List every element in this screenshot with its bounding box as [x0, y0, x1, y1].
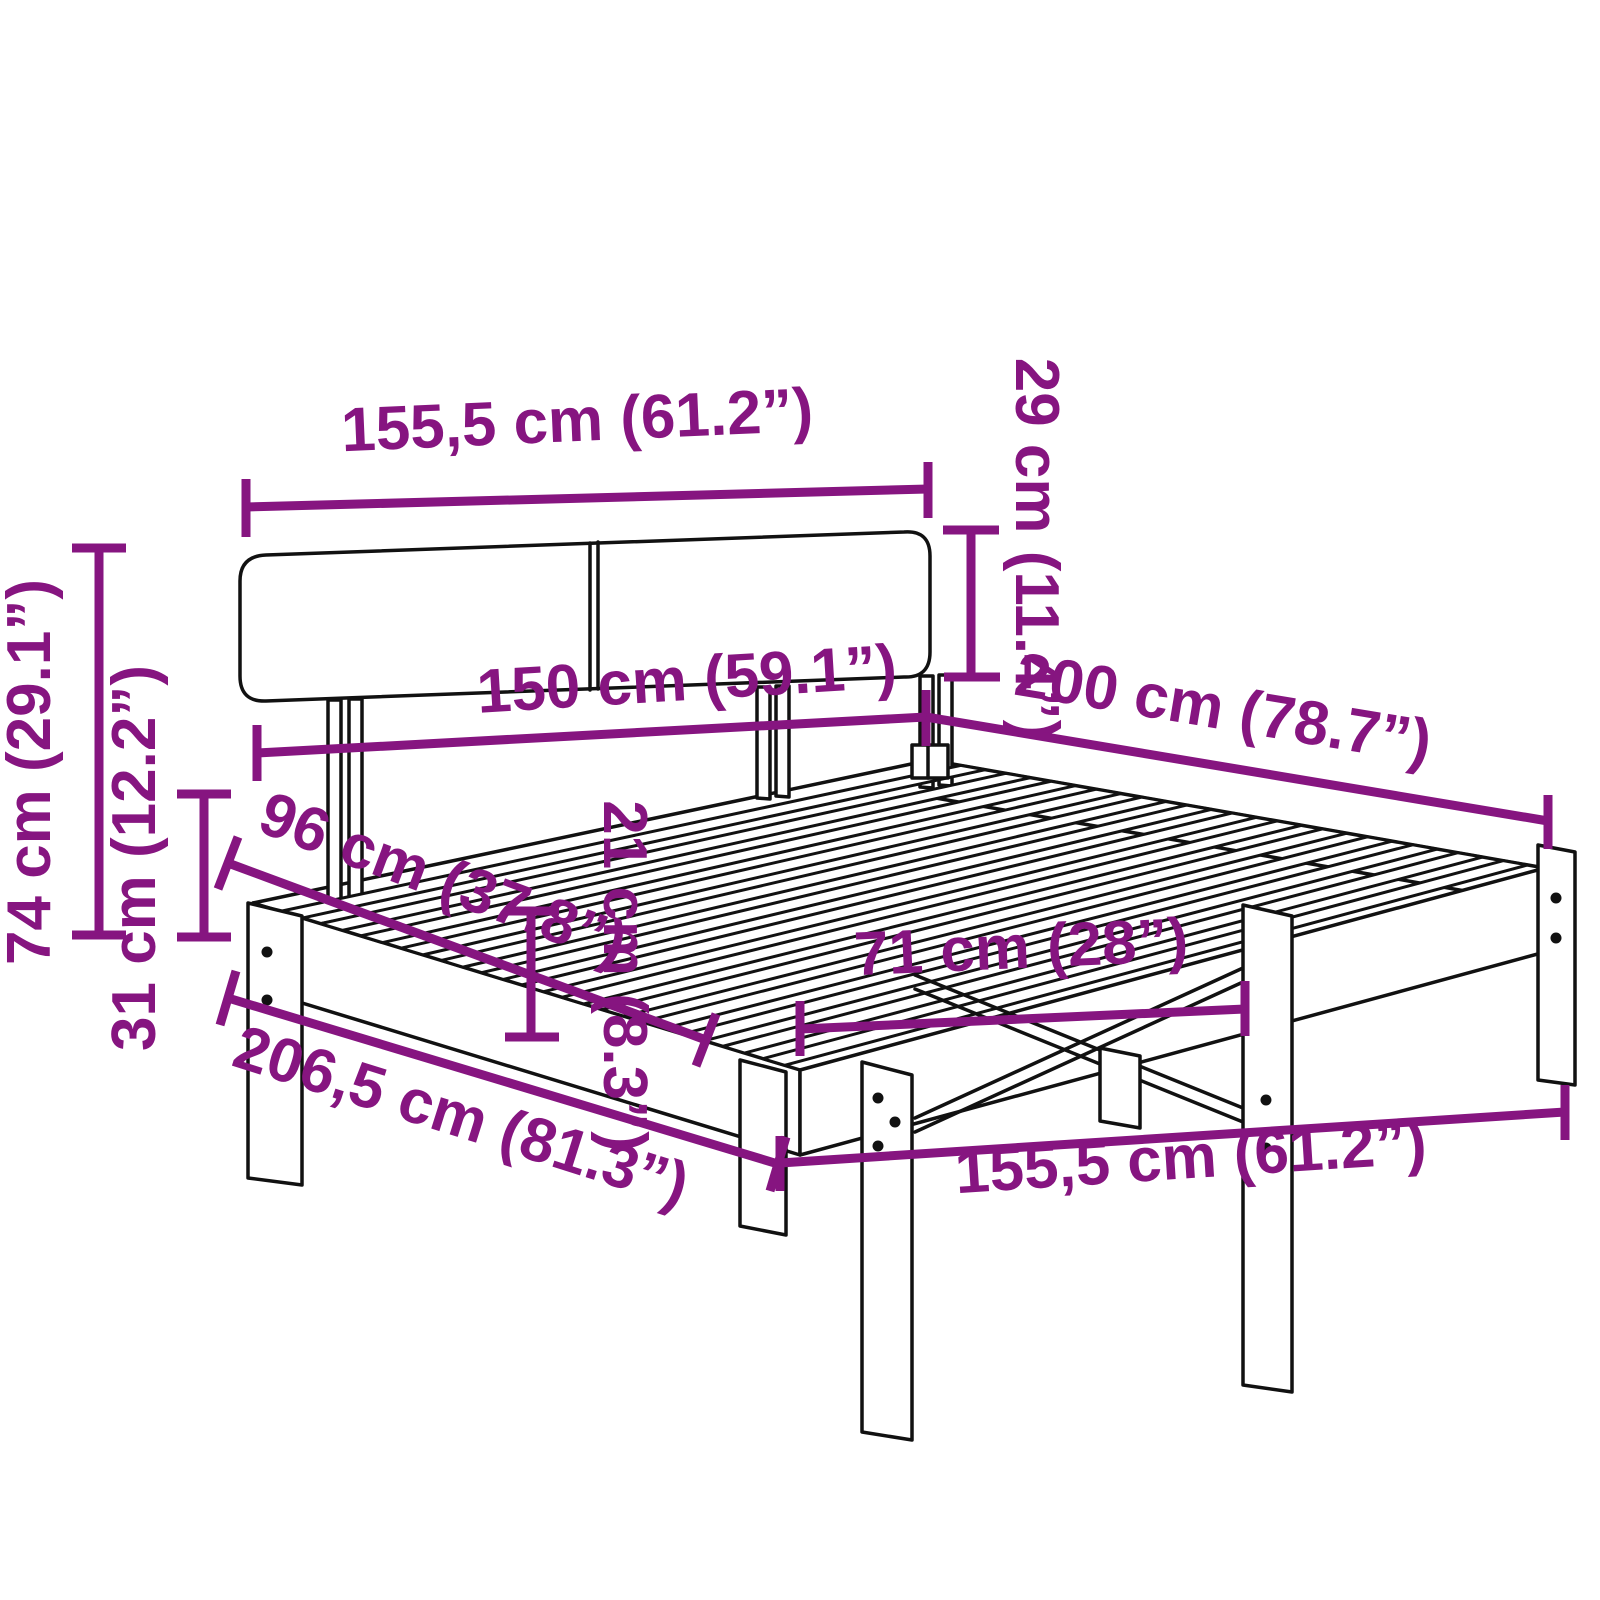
- dimension-label-total-height: 74 cm (29.1”): [0, 579, 64, 965]
- dimension-diagram-canvas: 155,5 cm (61.2”) 29 cm (11.4”) 150 cm (5…: [0, 0, 1600, 1600]
- rear-center-leg: [1100, 1048, 1140, 1128]
- dimension-label-headboard-width: 155,5 cm (61.2”): [340, 376, 815, 466]
- front-foot-leg: [862, 1062, 912, 1440]
- dimension-label-total-width: 155,5 cm (61.2”): [953, 1108, 1429, 1207]
- far-corner-post: [1538, 845, 1575, 1085]
- dimension-label-base-height: 31 cm (12.2”): [100, 665, 169, 1051]
- dimension-label-inner-length: 200 cm (78.7”): [1010, 640, 1436, 777]
- dimension-headboard-width: 155,5 cm (61.2”): [246, 376, 928, 537]
- corner-bracket: [912, 745, 948, 778]
- dimension-label-frame-side-height: 21 cm (8.3”): [590, 800, 659, 1152]
- diagram-stage: 155,5 cm (61.2”) 29 cm (11.4”) 150 cm (5…: [0, 0, 1600, 1600]
- dimension-label-leg-spacing: 71 cm (28”): [853, 906, 1190, 990]
- dimension-base-height: 31 cm (12.2”): [100, 665, 231, 1051]
